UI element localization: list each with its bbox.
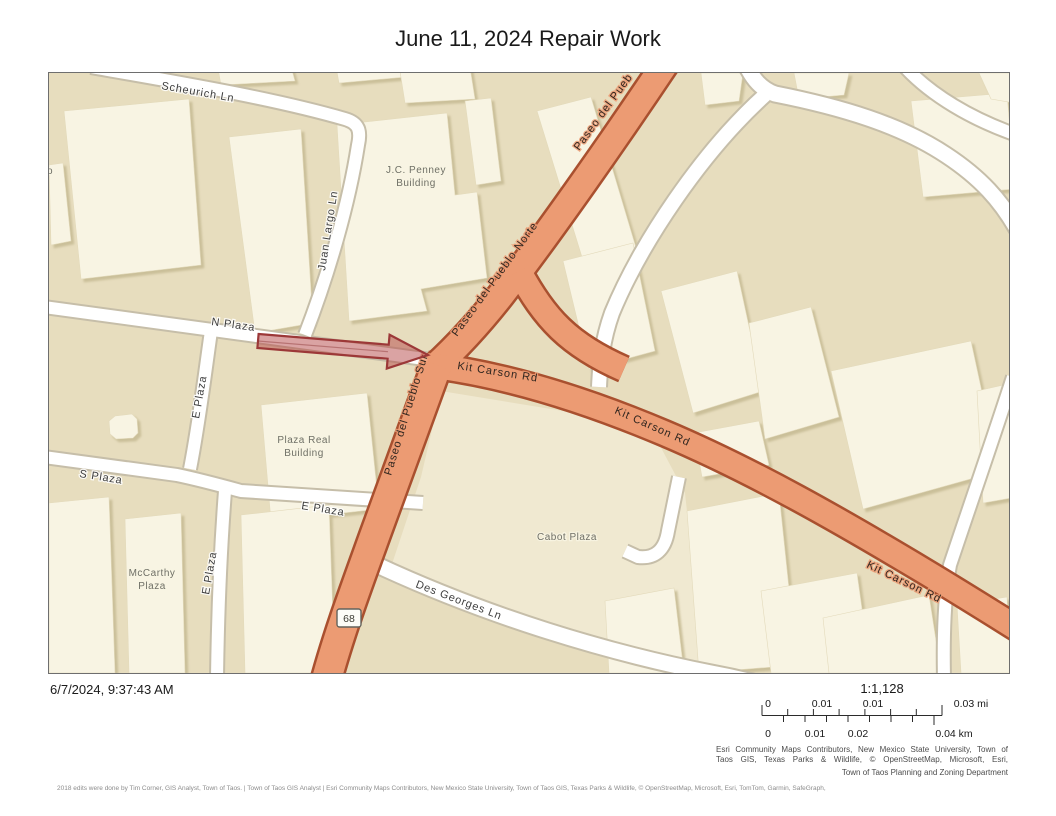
label-mccarthy-1: McCarthy xyxy=(129,568,176,579)
scale-km-2: 0.02 xyxy=(848,728,869,740)
scale-km-3: 0.04 km xyxy=(935,728,973,740)
label-plaza-real-2: Building xyxy=(284,448,324,459)
label-jc-penney-1: J.C. Penney xyxy=(386,165,446,176)
edit-credits: 2018 edits were done by Tim Corner, GIS … xyxy=(57,785,1017,792)
map-canvas[interactable]: 68 Scheurich Ln Juan Largo Ln N Plaza E … xyxy=(48,72,1010,674)
building xyxy=(701,73,743,105)
scale-mi-1: 0.01 xyxy=(812,698,833,710)
building-octagon xyxy=(109,414,138,439)
scale-mi-3: 0.03 mi xyxy=(954,698,988,710)
label-plaza-real-1: Plaza Real xyxy=(277,435,330,446)
export-page: June 11, 2024 Repair Work xyxy=(0,0,1056,816)
page-title: June 11, 2024 Repair Work xyxy=(0,26,1056,52)
label-jc-penney-2: Building xyxy=(396,178,436,189)
attribution-line-2: Taos GIS, Texas Parks & Wildlife, © Open… xyxy=(716,755,1008,765)
label-cabot-plaza: Cabot Plaza xyxy=(537,532,597,543)
scale-km-0: 0 xyxy=(765,728,771,740)
export-timestamp: 6/7/2024, 9:37:43 AM xyxy=(50,682,174,697)
route-shield-68: 68 xyxy=(337,609,361,627)
label-edge-partial: o xyxy=(49,166,53,177)
department-credit: Town of Taos Planning and Zoning Departm… xyxy=(842,768,1008,777)
scale-bar: 1:1,128 0 0.01 0.01 0.03 mi 0 0.01 0.02 … xyxy=(758,679,1010,745)
building xyxy=(64,99,201,279)
scale-mi-2: 0.01 xyxy=(863,698,884,710)
map-svg: 68 Scheurich Ln Juan Largo Ln N Plaza E … xyxy=(49,73,1009,673)
attribution-line-1: Esri Community Maps Contributors, New Me… xyxy=(716,745,1008,755)
attribution: Esri Community Maps Contributors, New Me… xyxy=(716,745,1008,764)
scale-mi-0: 0 xyxy=(765,698,771,710)
building xyxy=(49,497,115,673)
label-mccarthy-2: Plaza xyxy=(138,581,166,592)
building xyxy=(399,73,475,103)
scale-ratio: 1:1,128 xyxy=(860,681,903,696)
building-mccarthy xyxy=(125,513,185,673)
scale-ticks xyxy=(762,705,942,725)
route-shield-label: 68 xyxy=(343,613,355,625)
scale-km-1: 0.01 xyxy=(805,728,826,740)
